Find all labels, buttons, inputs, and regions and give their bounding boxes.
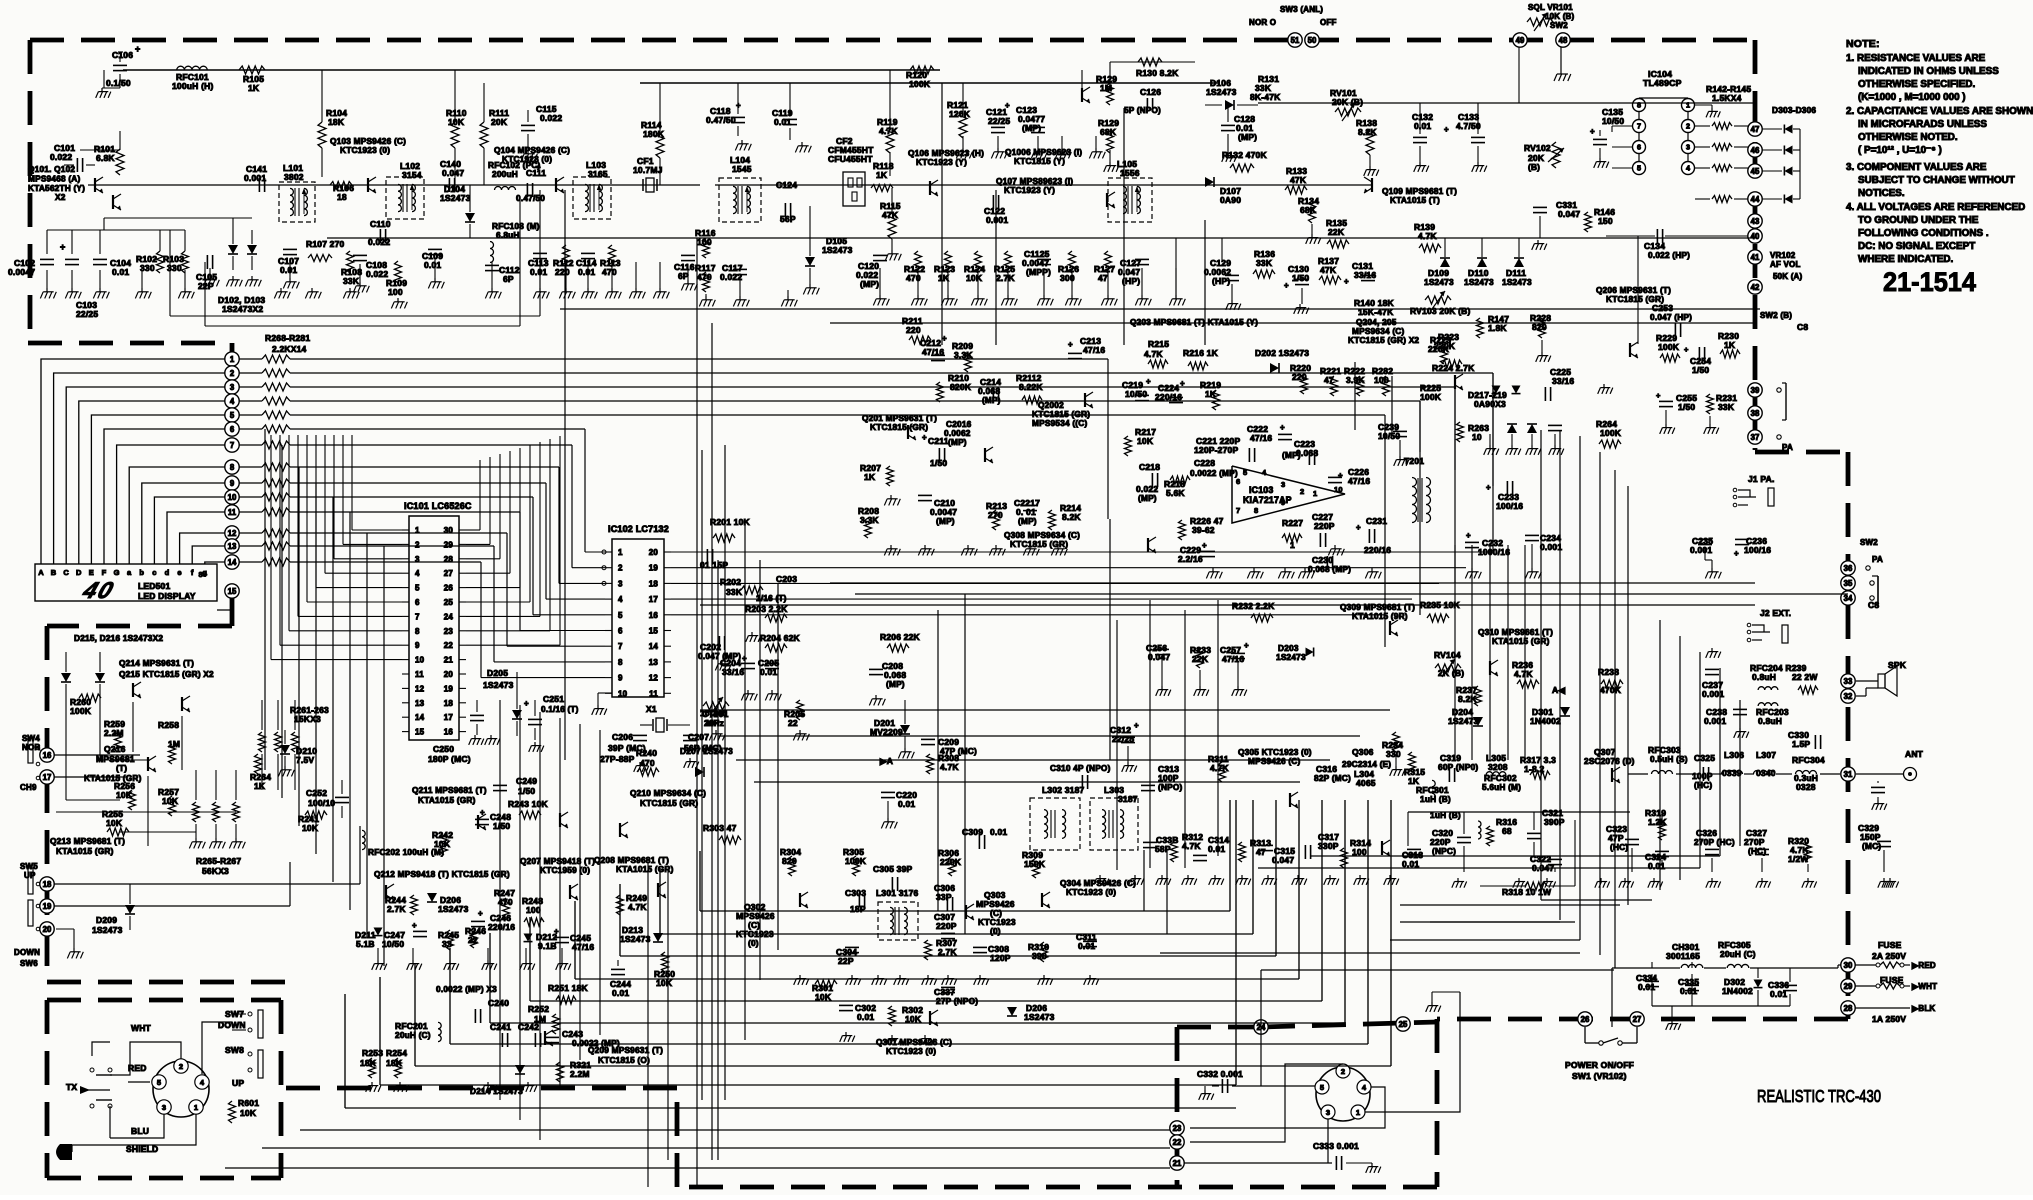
svg-text:1S2473: 1S2473: [483, 680, 514, 690]
svg-text:10/50: 10/50: [1125, 389, 1147, 399]
svg-text:1/16 (T): 1/16 (T): [756, 593, 787, 603]
svg-text:2: 2: [230, 369, 235, 378]
svg-text:+: +: [1005, 101, 1010, 110]
svg-text:10.7MJ: 10.7MJ: [633, 165, 663, 175]
svg-text:RFC304: RFC304: [1792, 755, 1825, 765]
svg-text:0.0022 (MP): 0.0022 (MP): [1190, 468, 1238, 478]
svg-text:11: 11: [415, 670, 424, 679]
svg-text:0.01: 0.01: [1648, 861, 1665, 871]
svg-text:R130 8.2K: R130 8.2K: [1136, 68, 1179, 78]
svg-text:0.068: 0.068: [978, 386, 1000, 396]
svg-text:9: 9: [415, 641, 420, 650]
svg-text:4: 4: [1262, 468, 1267, 477]
svg-text:C252: C252: [306, 788, 327, 798]
svg-text:5: 5: [157, 1078, 161, 1087]
svg-text:(MP): (MP): [860, 279, 879, 289]
svg-text:Q210 MPS9634 (C): Q210 MPS9634 (C): [630, 788, 706, 798]
svg-text:KTA1015 (T): KTA1015 (T): [1390, 195, 1440, 205]
svg-text:1000/16: 1000/16: [1478, 547, 1510, 557]
svg-text:330: 330: [167, 263, 182, 273]
svg-text:L306: L306: [1724, 750, 1744, 760]
svg-text:WHERE INDICATED.: WHERE INDICATED.: [1858, 254, 1954, 265]
svg-text:68: 68: [1502, 826, 1512, 836]
svg-text:15: 15: [649, 627, 659, 636]
svg-text:+: +: [1280, 423, 1285, 432]
svg-text:30: 30: [1844, 961, 1853, 970]
svg-text:2: 2: [1686, 122, 1690, 131]
svg-text:R254: R254: [386, 1048, 407, 1058]
svg-text:22: 22: [444, 641, 454, 650]
svg-text:6P: 6P: [503, 274, 514, 284]
svg-text:15KX3: 15KX3: [294, 714, 321, 724]
svg-text:SW3 (ANL): SW3 (ANL): [1280, 5, 1323, 14]
svg-text:a: a: [127, 568, 132, 577]
svg-text:INDICATED IN OHMS UNLESS: INDICATED IN OHMS UNLESS: [1858, 66, 1999, 77]
svg-text:R202: R202: [720, 577, 741, 587]
svg-text:D303-D306: D303-D306: [1772, 105, 1816, 115]
svg-text:REALISTIC TRC-430: REALISTIC TRC-430: [1757, 1086, 1881, 1106]
svg-text:+: +: [1146, 377, 1151, 386]
svg-text:4.7K: 4.7K: [1182, 841, 1201, 851]
svg-text:17: 17: [444, 713, 454, 722]
svg-text:47K: 47K: [1320, 265, 1337, 275]
svg-text:10K: 10K: [302, 823, 319, 833]
svg-text:44: 44: [1751, 195, 1760, 204]
svg-text:01 15P: 01 15P: [700, 560, 728, 570]
svg-text:WHT: WHT: [131, 1023, 152, 1033]
svg-text:58P: 58P: [1155, 844, 1171, 854]
svg-text:(MP): (MP): [886, 679, 905, 689]
svg-text:L301 3176: L301 3176: [876, 888, 919, 898]
svg-text:C228: C228: [1194, 458, 1215, 468]
svg-text:1: 1: [618, 548, 623, 557]
svg-text:470: 470: [640, 758, 655, 768]
svg-text:UP: UP: [232, 1078, 244, 1088]
svg-text:+: +: [412, 921, 417, 930]
svg-text:7: 7: [1236, 506, 1240, 515]
svg-text:(HC): (HC): [1610, 842, 1628, 852]
svg-text:CH9: CH9: [20, 783, 37, 792]
svg-text:50K (A): 50K (A): [1773, 272, 1803, 281]
svg-text:24: 24: [444, 612, 454, 621]
svg-text:6P: 6P: [678, 271, 689, 281]
svg-text:14: 14: [228, 558, 237, 567]
svg-text:+: +: [536, 163, 541, 172]
svg-text:KTC1923 (0): KTC1923 (0): [1066, 887, 1116, 897]
svg-text:C251: C251: [543, 694, 564, 704]
svg-text:0.01: 0.01: [530, 267, 547, 277]
svg-text:16: 16: [649, 611, 659, 620]
svg-text:2A 250V: 2A 250V: [1872, 951, 1906, 961]
svg-text:100/10: 100/10: [308, 798, 335, 808]
svg-text:R243 10K: R243 10K: [508, 799, 549, 809]
svg-text:4065: 4065: [1356, 778, 1376, 788]
svg-text:35: 35: [1844, 579, 1853, 588]
svg-text:18: 18: [337, 192, 347, 202]
svg-text:33/16: 33/16: [1552, 376, 1574, 386]
svg-text:1: 1: [1313, 489, 1317, 498]
svg-text:1N4002: 1N4002: [1722, 986, 1753, 996]
svg-text:15: 15: [415, 728, 425, 737]
svg-text:+: +: [1338, 471, 1343, 480]
svg-text:(MP): (MP): [1138, 493, 1157, 503]
svg-text:KTC1815 (GR): KTC1815 (GR): [640, 798, 698, 808]
svg-text:SW6: SW6: [20, 959, 38, 968]
svg-text:c: c: [152, 568, 156, 577]
svg-text:(MP): (MP): [1238, 132, 1257, 142]
svg-text:C231: C231: [1366, 516, 1387, 526]
svg-text:G: G: [114, 568, 120, 577]
svg-text:100K: 100K: [70, 706, 92, 716]
svg-text:7: 7: [230, 441, 234, 450]
svg-text:46: 46: [1751, 146, 1760, 155]
svg-text:KTC1815 (GR) X2: KTC1815 (GR) X2: [1348, 335, 1419, 345]
svg-text:R268-R281: R268-R281: [265, 333, 310, 343]
svg-text:Q203 MPS9681 (T) KTA1015 (Y: Q203 MPS9681 (T) KTA1015 (Y): [1130, 317, 1258, 327]
svg-text:0.01: 0.01: [280, 265, 297, 275]
svg-text:+: +: [1244, 641, 1249, 650]
svg-text:X2: X2: [55, 192, 66, 202]
svg-text:33K: 33K: [1718, 402, 1735, 412]
svg-text:120P: 120P: [990, 953, 1011, 963]
svg-text:18: 18: [43, 880, 52, 889]
svg-text:0339: 0339: [1722, 768, 1742, 778]
svg-text:3: 3: [162, 1103, 166, 1112]
svg-text:39-62: 39-62: [1192, 525, 1215, 535]
svg-text:1K: 1K: [876, 170, 888, 180]
svg-text:0.047: 0.047: [1558, 209, 1580, 219]
svg-text:VR102: VR102: [1770, 251, 1796, 260]
svg-text:KTC1923 (Y): KTC1923 (Y): [1004, 185, 1055, 195]
svg-text:KTC1815 (Y): KTC1815 (Y): [1014, 156, 1065, 166]
svg-text:3: 3: [618, 579, 623, 588]
svg-text:12: 12: [649, 674, 659, 683]
svg-text:R215: R215: [1148, 339, 1169, 349]
svg-text:18K: 18K: [328, 117, 345, 127]
svg-text:10: 10: [1334, 485, 1343, 494]
svg-text:Q211 MPS9681 (T): Q211 MPS9681 (T): [412, 785, 487, 795]
svg-text:0.001: 0.001: [1540, 542, 1562, 552]
svg-text:1.5KX4: 1.5KX4: [1712, 93, 1742, 103]
svg-text:NOTE:: NOTE:: [1846, 38, 1880, 50]
svg-text:10/50: 10/50: [1602, 116, 1624, 126]
svg-text:3: 3: [1281, 480, 1285, 489]
svg-text:e: e: [177, 568, 181, 577]
svg-text:36: 36: [1844, 564, 1853, 573]
svg-text:(MP): (MP): [936, 516, 955, 526]
svg-text:42: 42: [1751, 283, 1760, 292]
svg-text:9.1B: 9.1B: [538, 941, 557, 951]
svg-text:d: d: [165, 568, 170, 577]
svg-text:8.2K: 8.2K: [1062, 512, 1081, 522]
svg-text:6.8K: 6.8K: [96, 153, 115, 163]
svg-text:13: 13: [415, 699, 425, 708]
svg-text:R265-R267: R265-R267: [196, 856, 241, 866]
svg-text:20uH (C): 20uH (C): [1720, 949, 1756, 959]
svg-text:L302 3187: L302 3187: [1042, 785, 1085, 795]
svg-text:0.047 (HP): 0.047 (HP): [1650, 312, 1692, 322]
svg-text:R238: R238: [1598, 667, 1619, 677]
svg-text:1: 1: [1356, 1108, 1360, 1117]
svg-text:KTC1923 (0): KTC1923 (0): [886, 1046, 936, 1056]
svg-text:2: 2: [179, 1062, 183, 1071]
svg-text:NOTICES.: NOTICES.: [1858, 188, 1905, 199]
svg-text:POWER ON/OFF: POWER ON/OFF: [1565, 1060, 1634, 1070]
svg-text:1. RESISTANCE VALUES ARE: 1. RESISTANCE VALUES ARE: [1846, 53, 1986, 64]
svg-text:470: 470: [906, 273, 921, 283]
svg-text:0.01: 0.01: [1414, 121, 1431, 131]
svg-text:10K: 10K: [106, 818, 123, 828]
svg-text:SQL VR101: SQL VR101: [1528, 3, 1573, 12]
svg-text:DOWN: DOWN: [14, 948, 40, 957]
svg-text:20uH (C): 20uH (C): [395, 1030, 431, 1040]
svg-text:8+: 8+: [199, 570, 208, 579]
svg-text:5: 5: [1320, 1083, 1324, 1092]
svg-text:220: 220: [906, 325, 921, 335]
svg-text:4.7K: 4.7K: [1144, 349, 1163, 359]
svg-text:CFU455HT: CFU455HT: [828, 154, 873, 164]
svg-text:5: 5: [415, 584, 420, 593]
svg-text:E: E: [89, 568, 94, 577]
svg-text:MPS9534 ((C): MPS9534 ((C): [1032, 418, 1087, 428]
svg-text:D214 1S2473: D214 1S2473: [470, 1086, 523, 1096]
svg-text:b: b: [139, 568, 144, 577]
svg-text:1.5P: 1.5P: [1792, 739, 1810, 749]
svg-text:J2 EXT.: J2 EXT.: [1760, 608, 1791, 618]
svg-text:10K: 10K: [966, 273, 983, 283]
svg-text:100uH (H): 100uH (H): [172, 81, 213, 91]
svg-text:(NPC): (NPC): [1432, 846, 1456, 856]
svg-text:21: 21: [1173, 1159, 1182, 1168]
svg-text:390P: 390P: [1544, 817, 1565, 827]
svg-text:1545: 1545: [732, 164, 752, 174]
svg-text:100: 100: [526, 905, 541, 915]
svg-text:0.8uH: 0.8uH: [1752, 672, 1776, 682]
svg-text:8: 8: [1637, 101, 1641, 110]
svg-text:0.022: 0.022: [540, 113, 562, 123]
svg-text:5P (NPO): 5P (NPO): [1124, 106, 1161, 115]
svg-text:+: +: [1134, 721, 1139, 730]
svg-text:4.7K: 4.7K: [1418, 231, 1437, 241]
svg-text:7: 7: [618, 642, 623, 651]
svg-text:0.8uH: 0.8uH: [1758, 716, 1782, 726]
svg-text:1S2473: 1S2473: [440, 193, 471, 203]
svg-text:47/16: 47/16: [1083, 345, 1105, 355]
svg-text:(HC): (HC): [1694, 780, 1712, 790]
svg-text:1: 1: [230, 355, 235, 364]
svg-text:SW4: SW4: [22, 734, 40, 743]
svg-text:+: +: [1590, 127, 1595, 136]
svg-text:PA: PA: [1872, 555, 1883, 564]
svg-text:22P: 22P: [838, 956, 854, 966]
svg-text:C: C: [63, 568, 69, 577]
svg-text:33: 33: [1844, 677, 1853, 686]
svg-text:18: 18: [649, 579, 659, 588]
svg-text:100K: 100K: [909, 79, 931, 89]
svg-text:3208: 3208: [1488, 762, 1508, 772]
svg-text:22: 22: [788, 718, 798, 728]
svg-text:33K: 33K: [726, 587, 743, 597]
svg-text:C211: C211: [928, 436, 949, 446]
svg-text:100K: 100K: [1658, 342, 1680, 352]
svg-text:4.7K: 4.7K: [1514, 669, 1533, 679]
svg-text:A: A: [38, 568, 44, 577]
svg-text:IC103: IC103: [1249, 485, 1273, 495]
svg-text:R132 470K: R132 470K: [1222, 150, 1267, 160]
svg-text:100/16: 100/16: [1744, 545, 1771, 555]
svg-text:C110: C110: [370, 219, 391, 229]
svg-text:0.01: 0.01: [990, 827, 1007, 837]
svg-text:1K: 1K: [864, 472, 876, 482]
svg-text:1S2473X2: 1S2473X2: [222, 304, 263, 314]
svg-text:19: 19: [649, 564, 659, 573]
svg-text:SW5: SW5: [20, 862, 38, 871]
svg-text:3154: 3154: [402, 170, 422, 180]
svg-text:8K-47K: 8K-47K: [1250, 92, 1281, 102]
svg-text:ANT: ANT: [1905, 749, 1924, 759]
svg-text:20: 20: [43, 925, 52, 934]
svg-text:(NPO): (NPO): [1158, 782, 1183, 792]
svg-text:NOR O: NOR O: [1249, 18, 1276, 27]
svg-text:C325: C325: [1694, 753, 1715, 763]
svg-text:12: 12: [415, 684, 425, 693]
svg-text:220/16: 220/16: [1364, 545, 1391, 555]
svg-text:22/25: 22/25: [76, 309, 98, 319]
svg-text:10: 10: [618, 689, 628, 698]
svg-text:1S2473: 1S2473: [620, 934, 651, 944]
svg-text:KTC1923 (0): KTC1923 (0): [340, 145, 390, 155]
svg-text:TL489CP: TL489CP: [1643, 78, 1682, 88]
svg-text:2.2M: 2.2M: [570, 1069, 590, 1079]
svg-text:(B): (B): [1528, 162, 1540, 172]
svg-text:R216 1K: R216 1K: [1183, 348, 1219, 358]
svg-text:10: 10: [415, 656, 425, 665]
svg-text:23: 23: [1173, 1124, 1182, 1133]
svg-text:1S2473: 1S2473: [1502, 277, 1532, 287]
svg-text:2SC2076 (D): 2SC2076 (D): [1584, 756, 1635, 766]
svg-text:R251 18K: R251 18K: [548, 983, 589, 993]
svg-text:120P-270P: 120P-270P: [1194, 445, 1238, 455]
svg-text:5: 5: [1637, 164, 1641, 173]
svg-text:PA: PA: [1782, 443, 1793, 452]
svg-text:0.001: 0.001: [244, 173, 266, 183]
svg-text:56KX3: 56KX3: [202, 866, 229, 876]
svg-text:+: +: [135, 44, 140, 54]
svg-text:A◀: A◀: [1552, 685, 1566, 695]
svg-text:41: 41: [1751, 253, 1760, 262]
svg-text:1K: 1K: [254, 781, 266, 791]
svg-text:(MP): (MP): [1018, 516, 1037, 526]
svg-text:4: 4: [200, 1078, 205, 1087]
svg-text:1S2473: 1S2473: [92, 925, 123, 935]
svg-text:26: 26: [444, 584, 454, 593]
svg-text:0.001: 0.001: [1704, 716, 1726, 726]
svg-text:0.47/50: 0.47/50: [706, 115, 736, 125]
svg-text:1/50: 1/50: [493, 821, 510, 831]
svg-text:C124: C124: [776, 180, 797, 190]
svg-text:KTA1015 (GR): KTA1015 (GR): [418, 795, 476, 805]
svg-text:(MP): (MP): [948, 437, 967, 447]
svg-text:+: +: [478, 909, 483, 918]
svg-text:25: 25: [1399, 1020, 1408, 1029]
svg-text:4: 4: [415, 569, 420, 578]
svg-text:FUSE: FUSE: [1878, 940, 1902, 950]
svg-text:8.22K: 8.22K: [1019, 382, 1043, 392]
svg-text:+: +: [1466, 531, 1471, 540]
svg-text:C126: C126: [1140, 87, 1161, 97]
svg-text:14: 14: [649, 642, 659, 651]
svg-text:RV104: RV104: [1434, 650, 1461, 660]
svg-text:10/50: 10/50: [382, 939, 404, 949]
svg-text:29C2314 (E): 29C2314 (E): [1342, 759, 1391, 769]
svg-text:+: +: [1356, 523, 1361, 532]
svg-text:C203: C203: [776, 574, 797, 584]
svg-text:3: 3: [230, 383, 235, 392]
svg-text:J1 PA.: J1 PA.: [1748, 474, 1775, 484]
svg-text:16: 16: [444, 728, 454, 737]
svg-text:21-1514: 21-1514: [1883, 267, 1976, 297]
svg-text:0340: 0340: [1756, 768, 1776, 778]
svg-text:9: 9: [230, 479, 235, 488]
svg-text:150: 150: [1598, 216, 1613, 226]
svg-text:5: 5: [1243, 468, 1247, 477]
svg-text:3: 3: [1326, 1108, 1330, 1117]
svg-text:+: +: [554, 927, 559, 936]
svg-text:8: 8: [618, 658, 623, 667]
svg-text:2.7K: 2.7K: [387, 904, 406, 914]
svg-text:2. CAPACITANCE VALUES ARE SHOW: 2. CAPACITANCE VALUES ARE SHOWN: [1846, 106, 2033, 117]
svg-text:0.0022 (MP) X3: 0.0022 (MP) X3: [436, 984, 497, 994]
svg-text:R204 62K: R204 62K: [760, 633, 801, 643]
svg-text:KTA1015 (GR): KTA1015 (GR): [56, 846, 114, 856]
svg-text:49: 49: [1516, 36, 1525, 45]
svg-text:D205: D205: [487, 668, 508, 678]
svg-text:B: B: [51, 568, 57, 577]
svg-text:4: 4: [618, 595, 623, 604]
svg-text:2.2/16: 2.2/16: [1178, 554, 1203, 564]
svg-text:1S2473: 1S2473: [1024, 1012, 1055, 1022]
svg-text:12: 12: [228, 529, 237, 538]
svg-text:20: 20: [649, 548, 659, 557]
svg-text:TX: TX: [66, 1082, 77, 1092]
svg-text:28: 28: [1844, 1004, 1853, 1013]
svg-text:7.5V: 7.5V: [296, 755, 314, 765]
svg-text:3. COMPONENT VALUES ARE: 3. COMPONENT VALUES ARE: [1846, 162, 1987, 173]
svg-text:+: +: [1656, 391, 1661, 400]
svg-text:100K: 100K: [1600, 428, 1622, 438]
svg-text:1/50: 1/50: [1292, 273, 1309, 283]
svg-text:(0): (0): [748, 938, 759, 948]
svg-text:TO GROUND UNDER THE: TO GROUND UNDER THE: [1858, 215, 1979, 226]
svg-text:FOLLOWING CONDITIONS .: FOLLOWING CONDITIONS .: [1858, 228, 1989, 239]
svg-text:R227: R227: [1282, 518, 1303, 528]
svg-text:14: 14: [415, 713, 425, 722]
svg-text:(K=1000 , M=1000 000 ): (K=1000 , M=1000 000 ): [1858, 92, 1966, 103]
svg-text:6: 6: [1637, 143, 1641, 152]
svg-text:19: 19: [444, 684, 454, 693]
svg-text:100/16: 100/16: [1496, 501, 1523, 511]
svg-text:22K: 22K: [1328, 227, 1345, 237]
svg-text:20: 20: [444, 670, 454, 679]
svg-text:▶BLK: ▶BLK: [1911, 1004, 1935, 1013]
svg-text:20K (B): 20K (B): [1332, 97, 1363, 107]
svg-text:2: 2: [618, 564, 623, 573]
svg-text:10K: 10K: [1137, 436, 1154, 446]
svg-text:1S2473: 1S2473: [822, 245, 853, 255]
svg-text:+: +: [1180, 379, 1185, 388]
svg-text:6: 6: [1236, 477, 1240, 486]
svg-text:RED: RED: [128, 1063, 147, 1073]
